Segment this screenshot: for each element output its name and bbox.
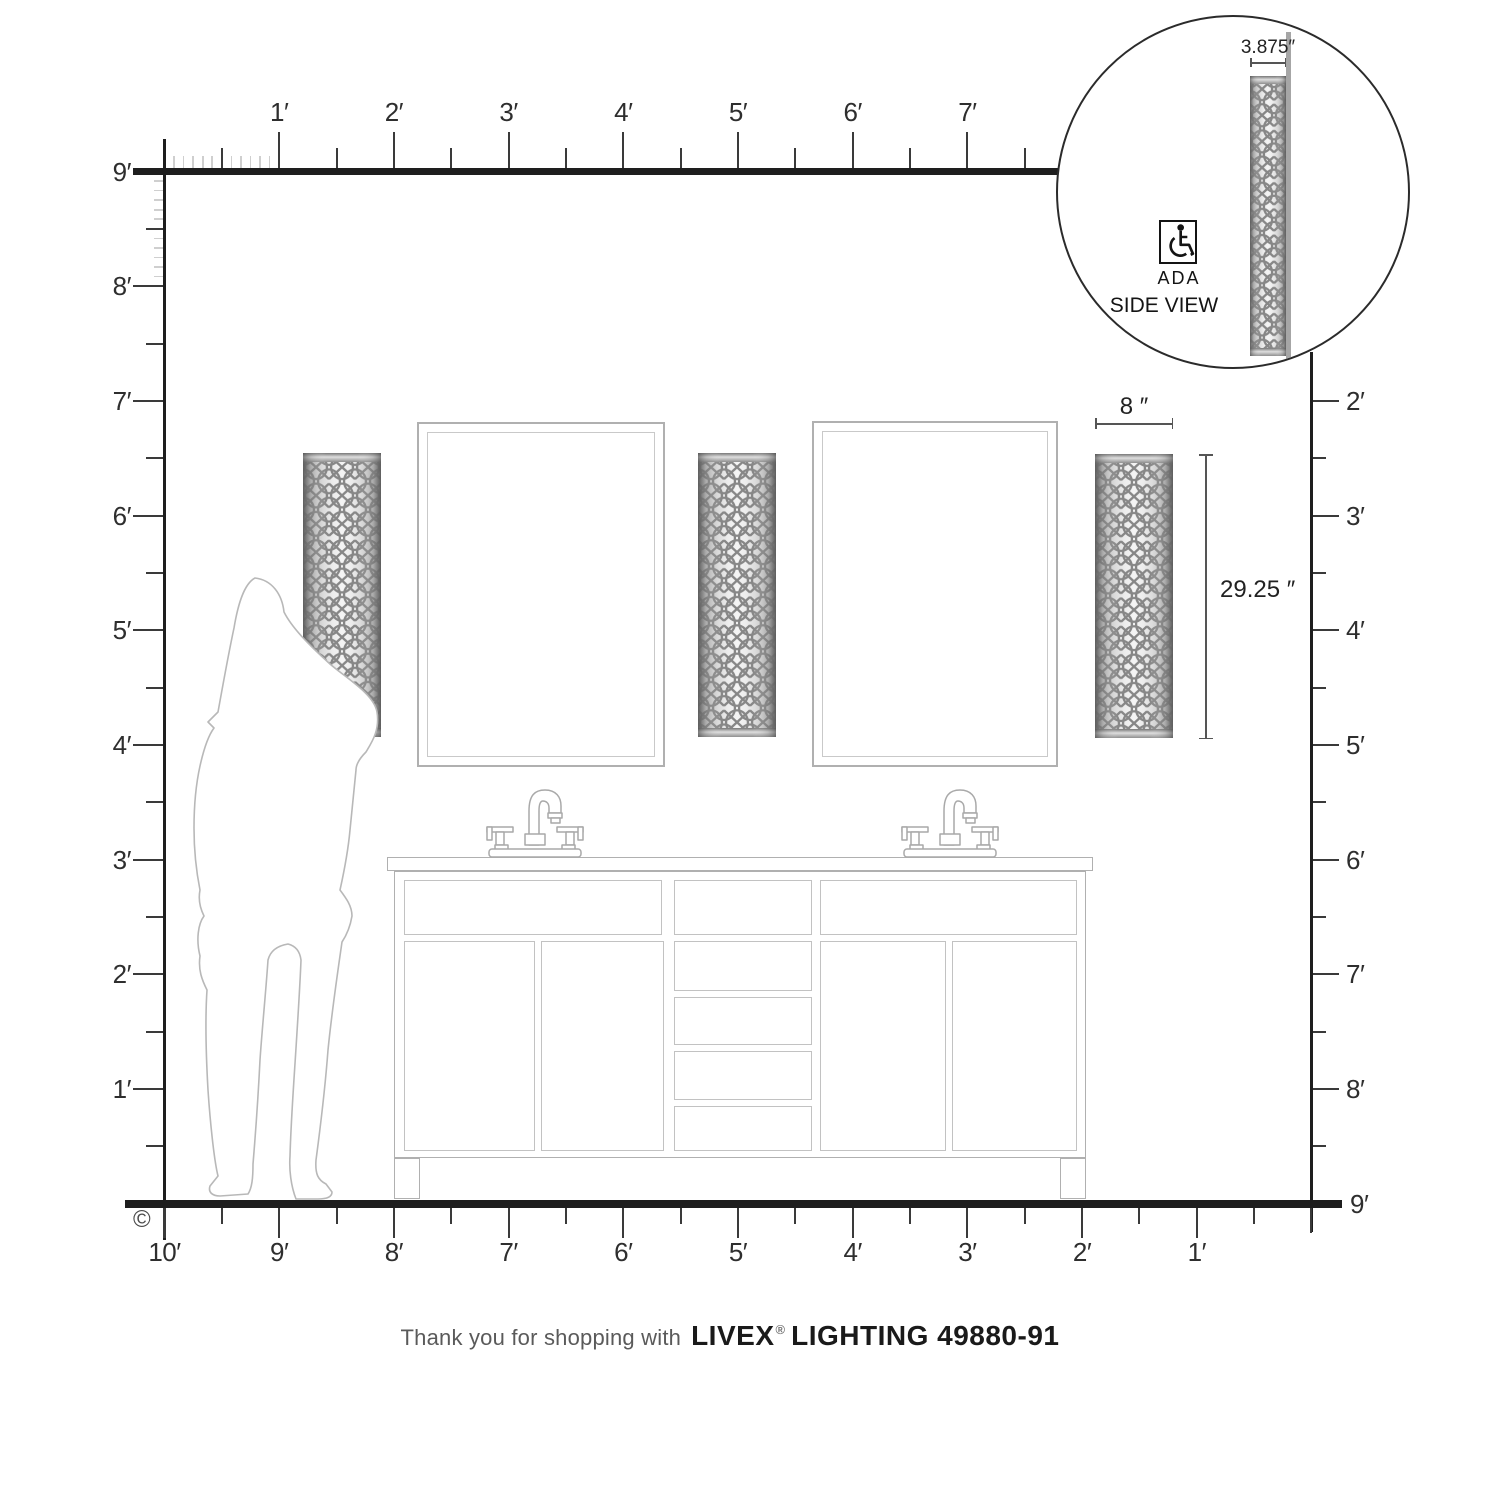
ruler-tick bbox=[146, 572, 163, 574]
ruler-tick bbox=[393, 132, 395, 168]
vanity-door bbox=[952, 941, 1077, 1151]
ruler-tick bbox=[1313, 744, 1339, 746]
mirror-right bbox=[812, 421, 1058, 767]
vanity-drawer bbox=[674, 941, 812, 991]
ruler-tick bbox=[852, 1208, 854, 1238]
ruler-tick bbox=[1313, 515, 1339, 517]
ruler-tick bbox=[508, 1208, 510, 1238]
left-ruler-label: 8′ bbox=[61, 271, 131, 301]
ruler-tick bbox=[154, 218, 163, 220]
ruler-tick bbox=[146, 801, 163, 803]
ruler-tick bbox=[154, 180, 163, 182]
ruler-tick bbox=[146, 343, 163, 345]
ruler-tick bbox=[909, 1208, 911, 1224]
ruler-tick bbox=[680, 1208, 682, 1224]
ruler-tick bbox=[1313, 687, 1326, 689]
faucet-left bbox=[475, 783, 595, 868]
ruler-tick bbox=[1253, 1208, 1255, 1224]
ruler-tick bbox=[1313, 916, 1326, 918]
ruler-tick bbox=[146, 228, 163, 230]
ruler-tick bbox=[240, 156, 242, 168]
top-ruler-label: 6′ bbox=[818, 97, 888, 127]
top-ruler-label: 3′ bbox=[474, 97, 544, 127]
bottom-ruler-label: 7′ bbox=[474, 1237, 544, 1267]
width-dimension-label: 8 ″ bbox=[1094, 393, 1174, 421]
ruler-tick bbox=[966, 1208, 968, 1238]
mirror-right-inner-frame bbox=[822, 431, 1048, 757]
ruler-tick bbox=[508, 132, 510, 168]
ruler-tick bbox=[221, 148, 223, 168]
left-ruler-label: 1′ bbox=[61, 1074, 131, 1104]
bottom-ruler-label: 1′ bbox=[1162, 1237, 1232, 1267]
ruler-tick bbox=[173, 156, 175, 168]
ruler-tick bbox=[1313, 457, 1326, 459]
left-ruler-label: 7′ bbox=[61, 386, 131, 416]
vanity-leg-left bbox=[394, 1158, 420, 1199]
ruler-tick bbox=[737, 132, 739, 168]
copyright-symbol: © bbox=[133, 1206, 151, 1234]
height-dimension-label: 29.25 ″ bbox=[1220, 576, 1295, 604]
ruler-tick bbox=[259, 156, 261, 168]
left-ruler-label: 5′ bbox=[61, 615, 131, 645]
top-ruler-label: 2′ bbox=[359, 97, 429, 127]
ruler-tick bbox=[154, 199, 163, 201]
vanity-drawer bbox=[674, 997, 812, 1045]
ruler-tick bbox=[336, 148, 338, 168]
ruler-tick bbox=[450, 1208, 452, 1224]
ruler-tick bbox=[1313, 973, 1339, 975]
right-ruler-label: 4′ bbox=[1346, 615, 1364, 645]
left-ruler-label: 6′ bbox=[61, 501, 131, 531]
ruler-tick bbox=[1313, 1031, 1326, 1033]
top-ruler-line bbox=[133, 168, 1059, 175]
ruler-tick bbox=[211, 156, 213, 168]
ruler-tick bbox=[1310, 1208, 1312, 1233]
ruler-tick bbox=[146, 457, 163, 459]
ruler-tick bbox=[1138, 1208, 1140, 1224]
ruler-tick bbox=[1313, 1145, 1326, 1147]
ruler-tick bbox=[1024, 148, 1026, 168]
bottom-ruler-label: 10′ bbox=[130, 1237, 200, 1267]
ruler-tick bbox=[966, 132, 968, 168]
ruler-tick bbox=[133, 859, 163, 861]
right-ruler-label: 2′ bbox=[1346, 386, 1364, 416]
ruler-tick bbox=[1313, 572, 1326, 574]
ada-label: ADA bbox=[1147, 268, 1211, 289]
ruler-tick bbox=[146, 916, 163, 918]
ruler-tick bbox=[133, 744, 163, 746]
ruler-tick bbox=[565, 148, 567, 168]
mirror-left-inner-frame bbox=[427, 432, 655, 757]
faucet-right bbox=[890, 783, 1010, 868]
bottom-ruler-label: 6′ bbox=[588, 1237, 658, 1267]
wall-section bbox=[1286, 32, 1291, 361]
top-ruler-label: 4′ bbox=[588, 97, 658, 127]
brand-name: LIVEX bbox=[691, 1320, 774, 1352]
ruler-tick bbox=[852, 132, 854, 168]
ruler-tick bbox=[622, 1208, 624, 1238]
registered-mark: ® bbox=[776, 1322, 786, 1337]
bottom-ruler-label: 3′ bbox=[932, 1237, 1002, 1267]
bottom-ruler-label: 8′ bbox=[359, 1237, 429, 1267]
ruler-tick bbox=[192, 156, 194, 168]
ruler-tick bbox=[1313, 629, 1339, 631]
ruler-tick bbox=[622, 132, 624, 168]
top-ruler-label: 5′ bbox=[703, 97, 773, 127]
ruler-tick bbox=[154, 209, 163, 211]
right-ruler-label: 7′ bbox=[1346, 959, 1364, 989]
ruler-tick bbox=[202, 156, 204, 168]
right-ruler-label: 6′ bbox=[1346, 845, 1364, 875]
ruler-tick bbox=[154, 247, 163, 249]
ruler-tick bbox=[1313, 1088, 1339, 1090]
vanity-door bbox=[541, 941, 664, 1151]
ruler-tick bbox=[154, 238, 163, 240]
dimension-diagram: 1′2′3′4′5′6′7′9′8′7′6′5′4′3′2′1′2′3′4′5′… bbox=[0, 0, 1500, 1500]
ruler-tick bbox=[146, 1145, 163, 1147]
vanity-drawer bbox=[674, 1106, 812, 1151]
left-ruler-label: 2′ bbox=[61, 959, 131, 989]
ruler-tick bbox=[133, 973, 163, 975]
ruler-tick bbox=[133, 285, 163, 287]
bottom-ruler-line bbox=[125, 1200, 1342, 1208]
left-ruler-label: 9′ bbox=[61, 157, 131, 187]
ruler-tick bbox=[450, 148, 452, 168]
top-ruler-label: 1′ bbox=[244, 97, 314, 127]
ruler-tick bbox=[1024, 1208, 1026, 1224]
vanity-drawer bbox=[674, 1051, 812, 1100]
ruler-tick bbox=[154, 266, 163, 268]
vanity-top-drawer-right bbox=[820, 880, 1077, 935]
ruler-tick bbox=[1081, 1208, 1083, 1238]
top-ruler-label: 7′ bbox=[932, 97, 1002, 127]
side-view-label: SIDE VIEW bbox=[1098, 294, 1230, 318]
ruler-tick bbox=[1313, 801, 1326, 803]
right-ruler-label: 3′ bbox=[1346, 501, 1364, 531]
ruler-tick bbox=[250, 156, 252, 168]
ruler-tick bbox=[146, 1031, 163, 1033]
ruler-tick bbox=[231, 156, 233, 168]
vanity-top-drawer-left bbox=[404, 880, 662, 935]
left-ruler-label: 3′ bbox=[61, 845, 131, 875]
ruler-tick bbox=[680, 148, 682, 168]
ruler-tick bbox=[146, 687, 163, 689]
right-ruler-label: 9′ bbox=[1350, 1189, 1368, 1219]
bottom-ruler-label: 2′ bbox=[1047, 1237, 1117, 1267]
side-view-inset: 3.875″ ADA SIDE VIEW bbox=[1056, 15, 1410, 369]
left-ruler-label: 4′ bbox=[61, 730, 131, 760]
right-ruler-line bbox=[1310, 352, 1314, 1232]
right-ruler-label: 8′ bbox=[1346, 1074, 1364, 1104]
caption: Thank you for shopping with LIVEX ® LIGH… bbox=[0, 1320, 1460, 1352]
ruler-tick bbox=[565, 1208, 567, 1224]
caption-model: LIGHTING 49880-91 bbox=[791, 1320, 1059, 1352]
vanity-leg-right bbox=[1060, 1158, 1086, 1199]
ruler-tick bbox=[221, 1208, 223, 1224]
ruler-tick bbox=[183, 156, 185, 168]
ruler-tick bbox=[1313, 859, 1339, 861]
vanity-door bbox=[820, 941, 946, 1151]
ruler-tick bbox=[269, 156, 271, 168]
ruler-tick bbox=[278, 1208, 280, 1238]
ruler-tick bbox=[336, 1208, 338, 1224]
ruler-tick bbox=[909, 148, 911, 168]
wall-sconce-right bbox=[1095, 454, 1173, 743]
ruler-tick bbox=[1313, 400, 1339, 402]
ruler-tick bbox=[794, 1208, 796, 1224]
ruler-tick bbox=[154, 276, 163, 278]
ruler-tick bbox=[393, 1208, 395, 1238]
ruler-tick bbox=[133, 515, 163, 517]
depth-dimension-label: 3.875″ bbox=[1225, 37, 1311, 59]
wheelchair-head bbox=[1177, 224, 1184, 231]
ruler-tick bbox=[133, 400, 163, 402]
caption-prefix: Thank you for shopping with bbox=[401, 1325, 682, 1351]
wall-sconce-side-view bbox=[1250, 76, 1286, 361]
bottom-ruler-label: 4′ bbox=[818, 1237, 888, 1267]
mirror-left bbox=[417, 422, 665, 767]
bottom-ruler-label: 5′ bbox=[703, 1237, 773, 1267]
left-ruler-line bbox=[163, 139, 167, 1240]
bottom-ruler-label: 9′ bbox=[244, 1237, 314, 1267]
wall-sconce-middle bbox=[698, 453, 776, 742]
ruler-tick bbox=[278, 132, 280, 168]
vanity-door bbox=[404, 941, 535, 1151]
ruler-tick bbox=[794, 148, 796, 168]
ruler-tick bbox=[1196, 1208, 1198, 1238]
ruler-tick bbox=[133, 629, 163, 631]
ruler-tick bbox=[154, 190, 163, 192]
ruler-tick bbox=[154, 257, 163, 259]
scale-person-silhouette bbox=[160, 560, 400, 1210]
right-ruler-label: 5′ bbox=[1346, 730, 1364, 760]
ada-compliance-icon bbox=[1159, 220, 1197, 264]
ruler-tick bbox=[737, 1208, 739, 1238]
ruler-tick bbox=[163, 1208, 165, 1238]
ruler-tick bbox=[133, 1088, 163, 1090]
vanity-top-drawer-center bbox=[674, 880, 812, 935]
